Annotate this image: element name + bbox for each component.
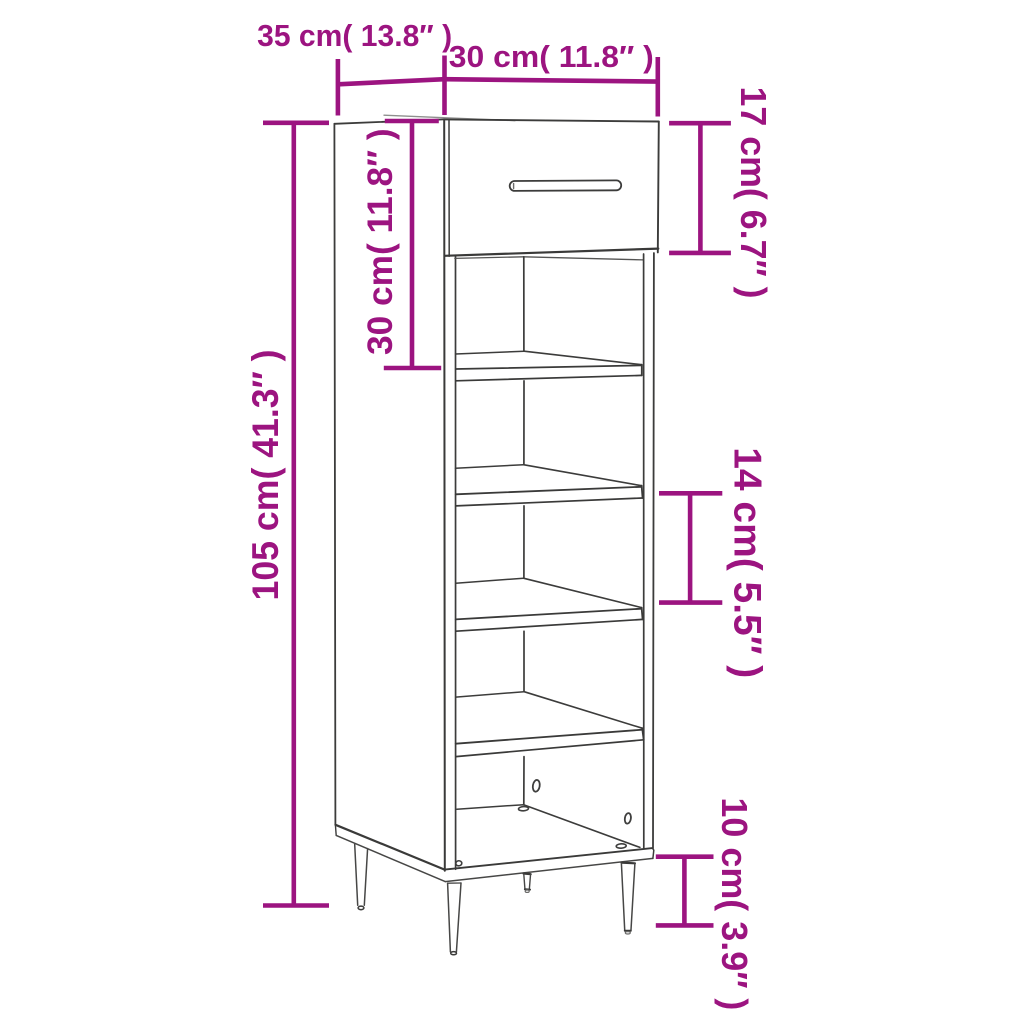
svg-text:30 cm( 11.8″ ): 30 cm( 11.8″ ) — [361, 128, 400, 355]
svg-text:10 cm( 3.9″ ): 10 cm( 3.9″ ) — [714, 797, 755, 1010]
svg-text:14 cm( 5.5″ ): 14 cm( 5.5″ ) — [725, 447, 768, 678]
svg-text:30 cm( 11.8″ ): 30 cm( 11.8″ ) — [449, 39, 654, 74]
svg-text:17 cm( 6.7″ ): 17 cm( 6.7″ ) — [733, 87, 774, 299]
svg-text:35 cm( 13.8″ ): 35 cm( 13.8″ ) — [257, 18, 452, 53]
svg-text:105 cm( 41.3″ ): 105 cm( 41.3″ ) — [245, 350, 286, 601]
